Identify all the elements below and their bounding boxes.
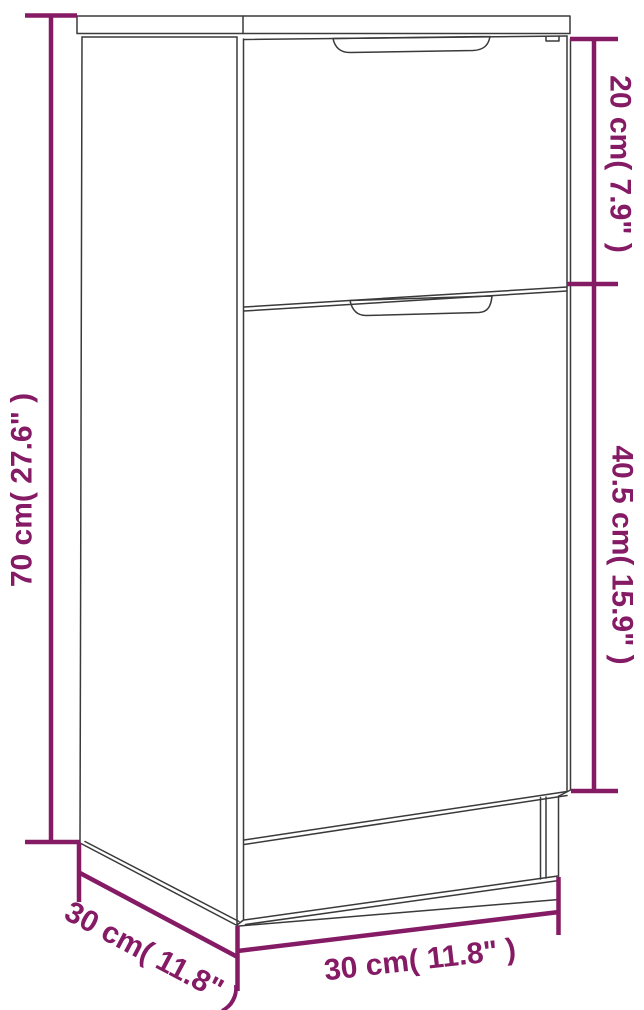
- door-height-dimension-label: 40.5 cm( 15.9" ): [606, 445, 639, 664]
- product-dimension-diagram: 70 cm( 27.6" ) 20 cm( 7.9" ) 40.5 cm( 15…: [0, 0, 644, 1010]
- sideboard-dimension-drawing: 70 cm( 27.6" ) 20 cm( 7.9" ) 40.5 cm( 15…: [0, 0, 644, 1010]
- right-side-foot-edges: [541, 796, 559, 899]
- back-right-edge: [559, 39, 571, 796]
- cabinet-line-art: [77, 16, 571, 926]
- dimension-lines: [25, 16, 618, 992]
- front-left-corner-post: [237, 37, 244, 925]
- drawer-height-dimension-label: 20 cm( 7.9" ): [604, 75, 637, 253]
- door-bottom-edge: [244, 792, 567, 845]
- drawer-handle: [333, 37, 490, 53]
- width-dimension-label: 30 cm( 11.8" ): [322, 933, 517, 988]
- top-panel: [77, 16, 570, 34]
- dimension-labels: 70 cm( 27.6" ) 20 cm( 7.9" ) 40.5 cm( 15…: [6, 75, 639, 1010]
- carcass-top-notch: [546, 37, 559, 42]
- side-panel-left-edge: [80, 37, 82, 843]
- height-dimension-label: 70 cm( 27.6" ): [6, 393, 39, 587]
